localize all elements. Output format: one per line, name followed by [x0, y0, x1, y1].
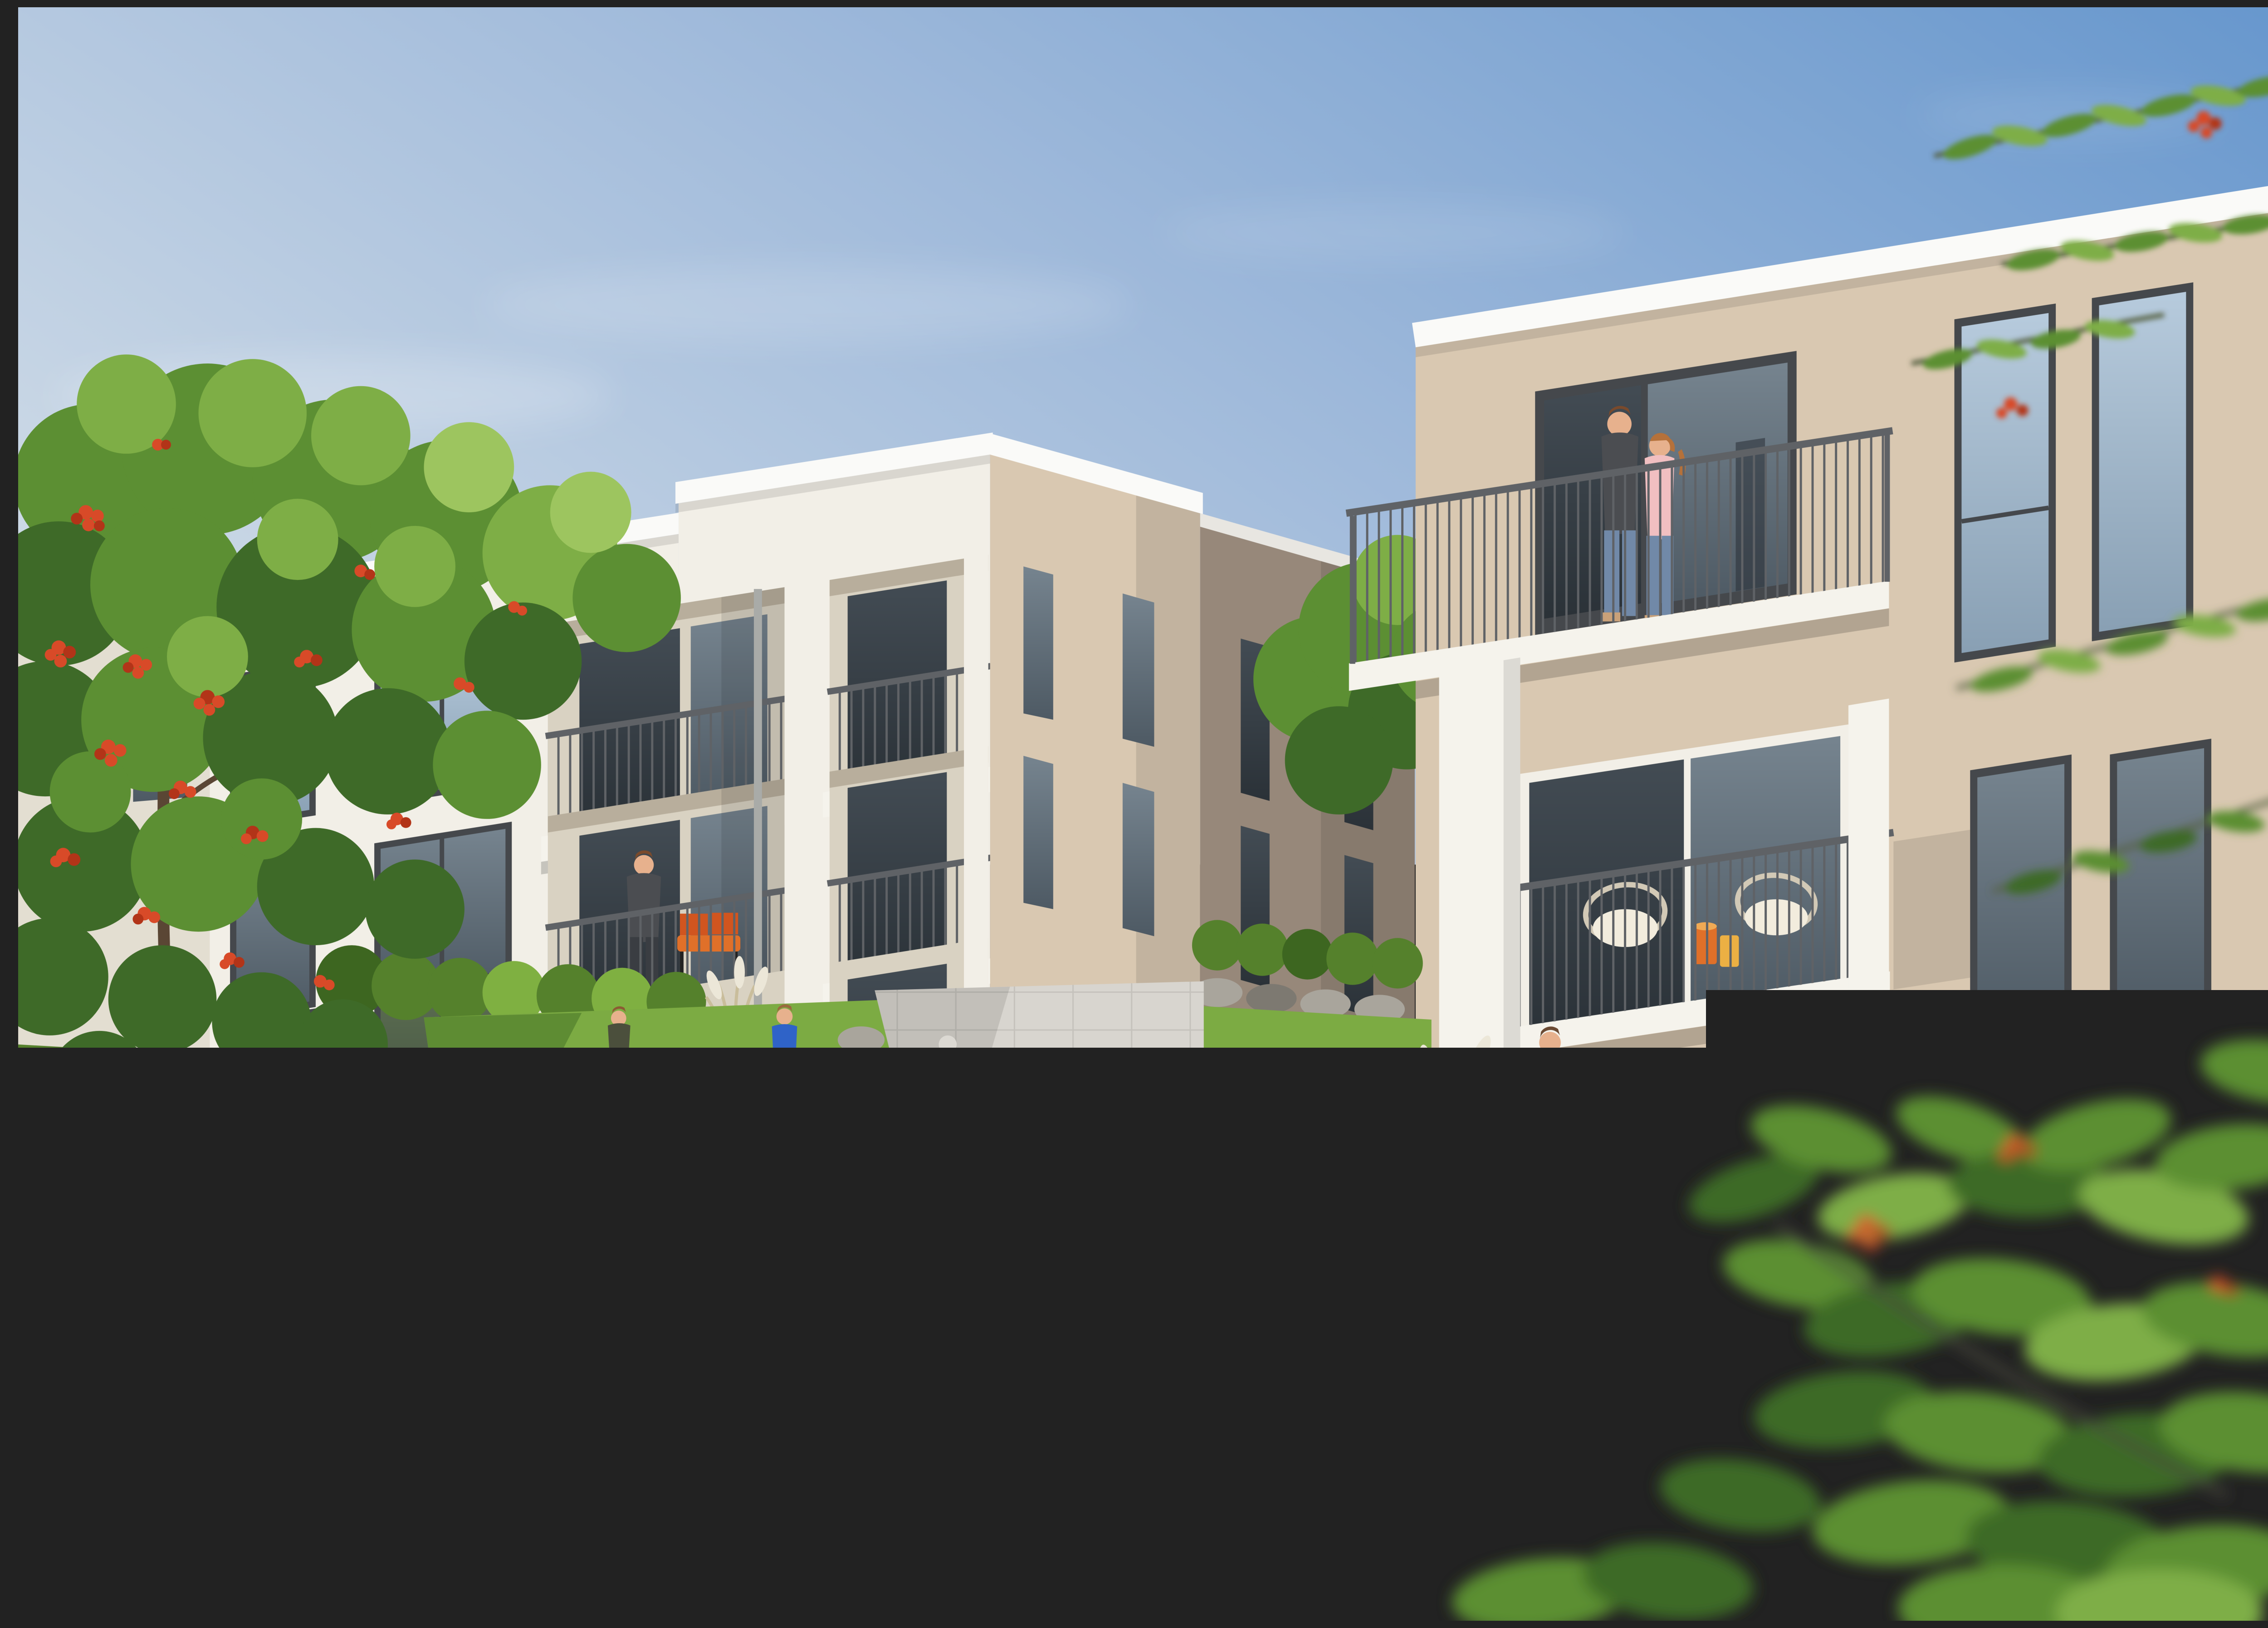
- utility-box-roof: [1308, 1053, 1420, 1068]
- rendering: [18, 7, 2268, 1621]
- left-terrace: [875, 981, 1203, 1171]
- gap-garden: [1181, 920, 1447, 1180]
- second-chair: [1100, 1076, 1155, 1126]
- railing-shadow: [1893, 830, 1970, 990]
- rendering-canvas: [18, 7, 2268, 1621]
